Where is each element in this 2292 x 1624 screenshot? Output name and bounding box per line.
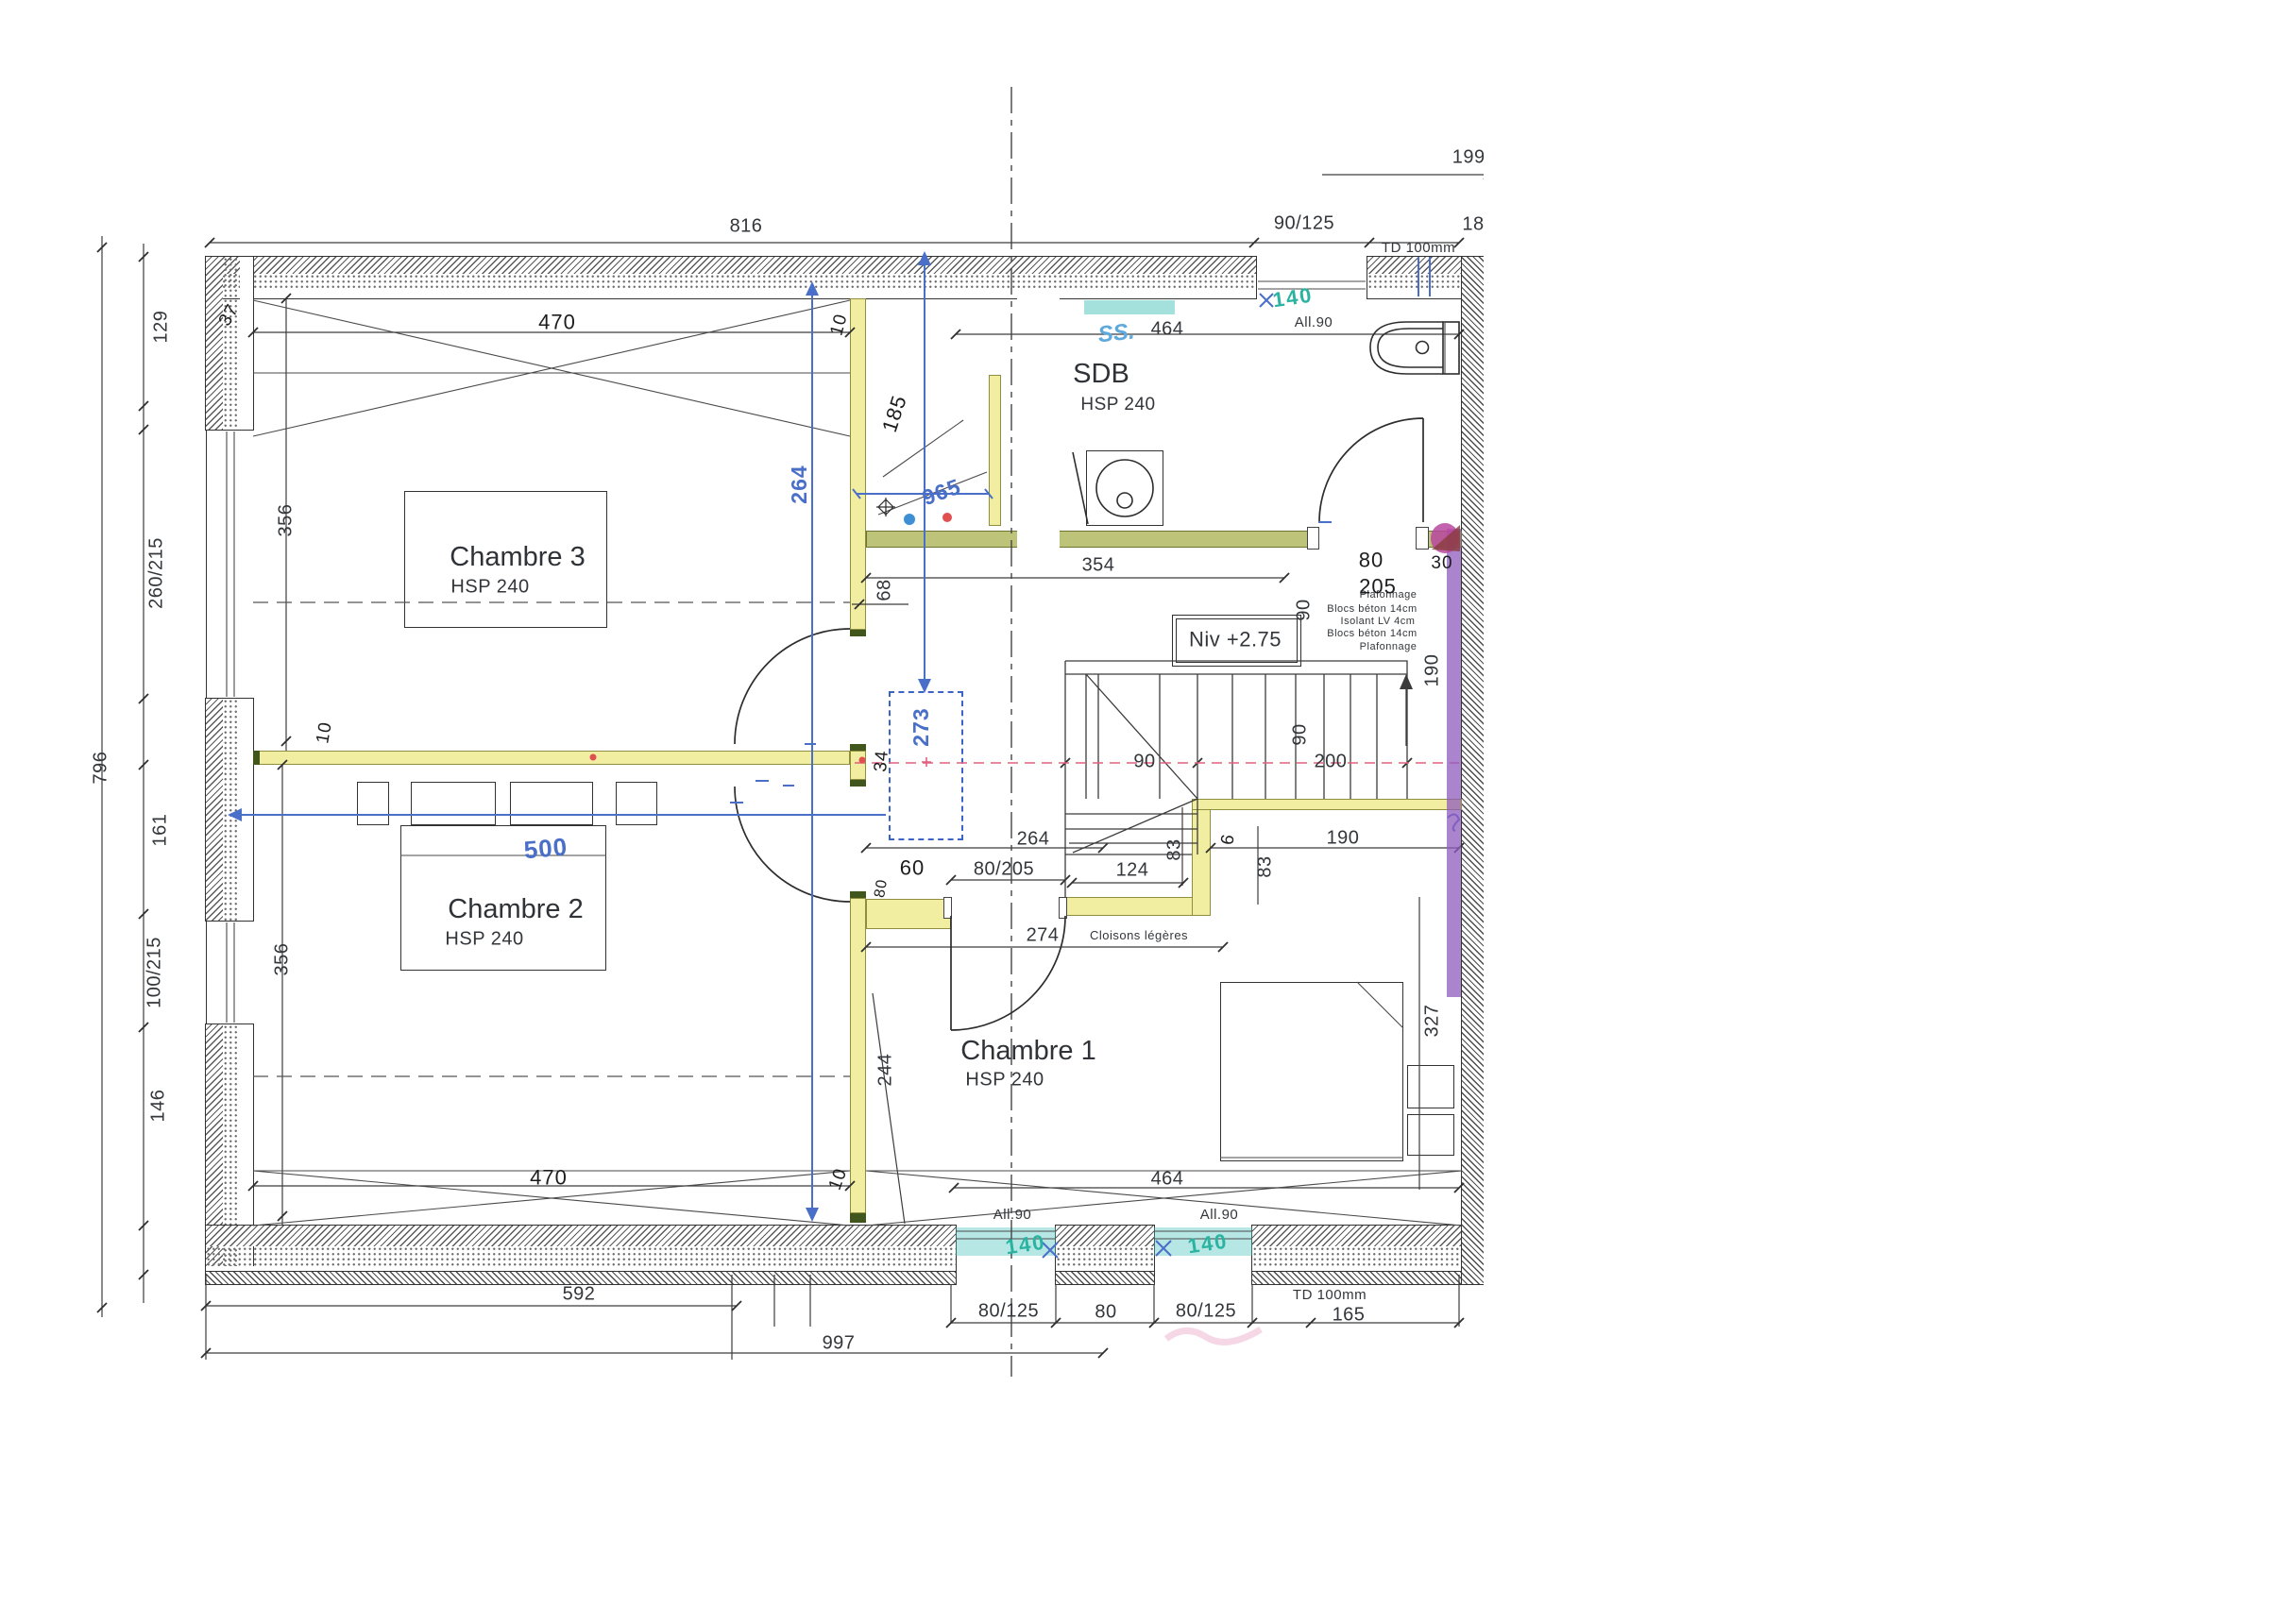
- door-jamb: [2014, 897, 2023, 919]
- washbasin-counter: [1803, 450, 1880, 526]
- room-chambre3: Chambre 3: [450, 543, 585, 571]
- pen-blue-lines: [1507, 255, 2292, 1258]
- dim-18: 18: [1482, 215, 1503, 235]
- dim-124: 124: [1818, 861, 1851, 881]
- dim-244: 244: [876, 1054, 896, 1087]
- legend-5: Plafonnage: [1360, 642, 1418, 653]
- dim-356-ch3: 356: [277, 504, 297, 537]
- hand-10-bottom: 10: [2115, 1166, 2141, 1193]
- level-tag: Niv +2.75: [1685, 628, 1777, 650]
- dim-83-b: 83: [1691, 855, 1711, 877]
- hand-60: 60: [2042, 856, 2066, 878]
- dim-ch1-464: 464: [1151, 1170, 1184, 1190]
- dimension-ticks: [97, 170, 1493, 1358]
- dim-796: 796: [92, 752, 111, 785]
- floor-drain-icon: [2071, 498, 2090, 516]
- pen-blue-arrowheads: [2035, 251, 2292, 1222]
- nightstand: [1512, 1114, 1559, 1156]
- hand-10-left: 10: [314, 720, 336, 745]
- construction-lines: [1504, 281, 2292, 1239]
- hand-80-small: 80: [873, 878, 891, 899]
- dim-83-a: 83: [1165, 838, 1185, 860]
- dim-190-v: 190: [1423, 654, 1443, 687]
- legend-1: Plafonnage: [1550, 590, 1607, 601]
- td-note-top: TD 100mm: [1511, 241, 1585, 256]
- partition-v1-upper: [2100, 298, 2116, 630]
- marker-140-bl: 140: [1919, 1231, 1962, 1259]
- legend-4: Blocs béton 14cm: [1327, 629, 1417, 640]
- pen-264: 264: [788, 465, 810, 503]
- dim-80-bottom: 80: [1849, 1303, 1871, 1323]
- pen-273: 273: [2034, 707, 2057, 746]
- dim-top-816: 816: [730, 217, 763, 237]
- hand-60: 60: [900, 856, 925, 878]
- note-cloisons: Cloisons légères: [1090, 929, 1188, 942]
- door-arcs: [735, 418, 1423, 1030]
- legend-5: Plafonnage: [1550, 642, 1607, 653]
- dim-window-100-215: 100/215: [145, 937, 165, 1008]
- dim-997: 997: [2112, 1334, 2145, 1354]
- stairs: [1553, 661, 1901, 897]
- wall-bottom-right: [1478, 1226, 1714, 1284]
- wall-top-right: [1478, 257, 1599, 298]
- dim-window-260-215: 260/215: [147, 537, 167, 609]
- hand-185: 185: [2056, 393, 2088, 435]
- marker-140-bl: 140: [1004, 1231, 1047, 1259]
- dim-200: 200: [1315, 753, 1348, 772]
- washbasin-icon: [1073, 452, 1153, 524]
- pen-273: 273: [909, 707, 932, 746]
- floor-drain-icon: [876, 498, 895, 516]
- dim-124: 124: [1116, 861, 1149, 881]
- legend-3: Isolant LV 4cm: [1341, 617, 1416, 628]
- hand-470-top: 470: [538, 311, 576, 332]
- note-cloisons: Cloisons légères: [1778, 929, 1876, 942]
- dim-80-125-l: 80/125: [978, 1302, 1039, 1322]
- partition-stair-v: [1756, 799, 1774, 916]
- room-chambre3-hsp: HSP 240: [450, 578, 529, 598]
- pen-425-neighbor: 425: [1984, 591, 2007, 630]
- level-tag-box: [1669, 618, 1791, 663]
- dim-327: 327: [1524, 1005, 1544, 1038]
- allege-note-top: All.90: [1634, 315, 1672, 330]
- allege-br: All.90: [1728, 1208, 1767, 1223]
- dim-274: 274: [1027, 926, 1060, 946]
- lintel: [2100, 1213, 2116, 1223]
- dim-997: 997: [823, 1334, 856, 1354]
- highlight-window-bl: [1910, 1227, 2011, 1256]
- partition-hall-sdb: [1649, 531, 2100, 548]
- td-note-bottom: TD 100mm: [1600, 1288, 1673, 1303]
- hand-80-door: 80: [1359, 549, 1384, 570]
- erased-pink-scribble: [1166, 1329, 1261, 1342]
- pen-blue-lines: [231, 255, 1459, 1258]
- washbasin-icon: [1813, 452, 1893, 524]
- door-arcs: [1543, 418, 2232, 1030]
- dim-129: 129: [152, 311, 172, 344]
- dim-83-a: 83: [1782, 838, 1802, 860]
- dim-356-ch2: 356: [273, 943, 293, 976]
- erased-pink-scribble: [1706, 1329, 1800, 1342]
- partition-hall-ch1-r: [1756, 897, 1901, 916]
- dim-354: 354: [1852, 556, 1885, 576]
- pen-color-dots: [2014, 513, 2292, 767]
- toilet-icon: [1370, 322, 1459, 374]
- room-chambre2-hsp: HSP 240: [445, 930, 523, 950]
- construction-lines: [227, 281, 1462, 1239]
- partition-stair-h: [1504, 799, 1774, 810]
- dim-top-window: 90/125: [1632, 214, 1692, 234]
- room-chambre2: Chambre 2: [448, 895, 583, 923]
- dim-264-hall: 264: [1917, 830, 1950, 850]
- nightstand: [1512, 1065, 1559, 1108]
- allege-bl: All.90: [993, 1208, 1032, 1223]
- hand-34: 34: [872, 750, 892, 773]
- pen-965: 965: [2002, 475, 2046, 510]
- pen-ss: SS.: [1830, 319, 1869, 347]
- hand-30: 30: [1431, 554, 1452, 573]
- dim-161: 161: [151, 814, 171, 847]
- dim-190-v: 190: [1524, 654, 1544, 687]
- pen-ss: SS.: [1096, 319, 1135, 347]
- dashed-room-lines: [2116, 602, 2292, 1076]
- wall-bottom-mid: [1812, 1226, 1910, 1284]
- dim-80-bottom: 80: [1095, 1303, 1116, 1323]
- dim-sdb-464: 464: [1151, 320, 1184, 340]
- lintel: [2100, 630, 2116, 636]
- dim-90-stair: 90: [1810, 753, 1832, 772]
- hand-34: 34: [2074, 750, 2095, 773]
- pen-shaft-rect: [2003, 691, 2078, 840]
- hand-205: 205: [1359, 575, 1397, 597]
- room-chambre1-hsp: HSP 240: [1922, 1071, 2000, 1091]
- hand-80-door: 80: [1583, 549, 1607, 570]
- partition-v1-mid: [2100, 751, 2116, 780]
- dim-83-b: 83: [1256, 855, 1276, 877]
- party-wall-highlight: [1505, 523, 1536, 997]
- dim-top-window: 90/125: [1274, 214, 1334, 234]
- bed-ch1: [1563, 982, 1746, 1161]
- hand-30: 30: [1513, 554, 1535, 573]
- highlight-window-br: [1714, 1227, 1812, 1256]
- dim-165: 165: [1333, 1306, 1366, 1326]
- dim-90-stair-v: 90: [1656, 723, 1676, 745]
- dim-90-stair-v: 90: [1291, 723, 1311, 745]
- partition-shower: [1965, 375, 1978, 526]
- dimension-ticks: [1473, 170, 2292, 1358]
- door-jamb: [1537, 527, 1551, 550]
- partition-hall-ch1-l: [2015, 899, 2100, 929]
- party-wall-highlight: [1431, 523, 1461, 997]
- dim-top-816: 816: [2204, 217, 2237, 237]
- hand-10-top: 10: [2114, 312, 2138, 338]
- hand-205: 205: [1570, 575, 1607, 597]
- legend-3: Isolant LV 4cm: [1552, 617, 1626, 628]
- dim-200: 200: [1620, 753, 1653, 772]
- dim-165: 165: [1602, 1306, 1635, 1326]
- door-jamb: [1647, 527, 1659, 550]
- dim-90-stair: 90: [1133, 753, 1155, 772]
- floorplan-scan: 81690/125199418TD 100mmAll.90464SDBHSP 2…: [0, 0, 2292, 1624]
- pen-color-dots: [590, 513, 953, 767]
- wall-bottom-left: [2011, 1226, 2292, 1284]
- hand-470-bottom: 470: [530, 1166, 568, 1188]
- level-tag: Niv +2.75: [1189, 628, 1282, 650]
- room-chambre1: Chambre 1: [960, 1037, 1095, 1065]
- dim-190-h: 190: [1607, 829, 1640, 849]
- marker-140-top: 140: [1271, 284, 1315, 312]
- td-note-bottom: TD 100mm: [1293, 1288, 1367, 1303]
- highlight-ss: [1791, 300, 1882, 314]
- dim-327: 327: [1423, 1005, 1443, 1038]
- dim-90-wall: 90: [1295, 599, 1315, 620]
- dim-68: 68: [2072, 579, 2092, 601]
- dim-274: 274: [1908, 926, 1941, 946]
- dim-door-80-205: 80/205: [974, 860, 1034, 880]
- td-note-top: TD 100mm: [1382, 241, 1455, 256]
- legend-4: Blocs béton 14cm: [1549, 629, 1638, 640]
- room-chambre1: Chambre 1: [1870, 1037, 2005, 1065]
- partition-hall-sdb-r: [1504, 531, 1543, 548]
- hand-80-small: 80: [2075, 878, 2094, 899]
- dim-68: 68: [875, 579, 895, 601]
- pen-64-neighbor: 64: [1922, 348, 1949, 378]
- dim-90-wall: 90: [1653, 599, 1672, 620]
- marker-140-br: 140: [1186, 1230, 1230, 1258]
- dim-244: 244: [2071, 1054, 2091, 1087]
- partition-v1-lower: [2100, 898, 2116, 1213]
- legend-2: Blocs béton 14cm: [1327, 604, 1417, 616]
- dim-80-125-l: 80/125: [1927, 1302, 1988, 1322]
- allege-br: All.90: [1200, 1208, 1239, 1223]
- dim-190-h: 190: [1327, 829, 1360, 849]
- lintel: [2100, 780, 2116, 787]
- door-jamb: [1899, 897, 1908, 919]
- dim-80-125-r: 80/125: [1730, 1302, 1791, 1322]
- toilet-icon: [1507, 322, 1596, 374]
- marker-140-br: 140: [1737, 1230, 1780, 1258]
- lintel: [2100, 744, 2116, 751]
- pen-500: 500: [523, 834, 569, 863]
- dim-264-hall: 264: [1017, 830, 1050, 850]
- dim-354: 354: [1082, 556, 1115, 576]
- allege-note-top: All.90: [1295, 315, 1333, 330]
- lintel: [2100, 891, 2116, 898]
- hand-6: 6: [1727, 833, 1748, 847]
- room-chambre1-hsp: HSP 240: [965, 1071, 1044, 1091]
- dim-door-80-205: 80/205: [1932, 860, 1993, 880]
- dim-18: 18: [1462, 215, 1484, 235]
- room-sdb: SDB: [1073, 360, 1129, 388]
- legend-2: Blocs béton 14cm: [1549, 604, 1638, 616]
- partition-ch3-ch2: [2116, 751, 2292, 765]
- scan-artifact: [1907, 296, 1949, 548]
- allege-bl: All.90: [1935, 1208, 1974, 1223]
- dim-ch1-464: 464: [1783, 1170, 1816, 1190]
- dim-80-125-r: 80/125: [1176, 1302, 1236, 1322]
- dim-sdb-464: 464: [1783, 320, 1816, 340]
- room-sdb-hsp: HSP 240: [1080, 396, 1155, 414]
- dim-146: 146: [149, 1090, 169, 1123]
- dim-592: 592: [563, 1285, 596, 1305]
- marker-140-top: 140: [1652, 284, 1695, 312]
- room-sdb: SDB: [1837, 360, 1893, 388]
- wall-top-left: [1710, 257, 2292, 298]
- room-sdb-hsp: HSP 240: [1810, 396, 1885, 414]
